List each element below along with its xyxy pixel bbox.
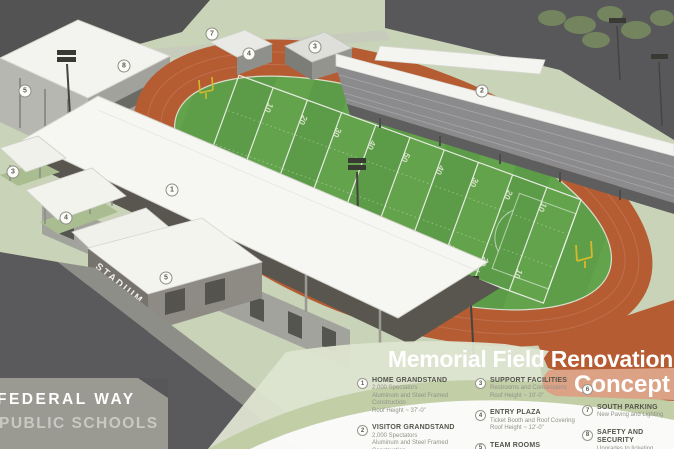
district-logo: FEDERAL WAY PUBLIC SCHOOLS [0,378,168,449]
legend-item-2: 2VISITOR GRANDSTAND2,000 SpectatorsAlumi… [357,424,471,449]
legend-item-3: 3SUPPORT FACILITIESRestrooms and Concess… [475,377,578,400]
rendering-page: 102030405040302010102030405040302010 [0,0,674,449]
legend-item-8: 8SAFETY AND SECURITYUpgrades to ticketin… [582,429,674,449]
legend-item-6: 6 [582,383,674,395]
callout-marker-7: 7 [206,28,219,41]
legend-item-label: SOUTH PARKING [597,404,663,412]
legend-item-desc: Roof Height ~ 10'-0" [490,393,567,401]
legend: 1HOME GRANDSTAND2,000 SpectatorsAluminum… [357,377,674,449]
legend-column-1: 1HOME GRANDSTAND2,000 SpectatorsAluminum… [357,377,471,449]
legend-item-number: 5 [475,443,486,449]
legend-item-4: 4ENTRY PLAZATicket Booth and Roof Coveri… [475,409,578,432]
legend-item-label: TEAM ROOMS [490,442,574,449]
legend-item-label: VISITOR GRANDSTAND [372,424,471,432]
callout-marker-1: 1 [166,184,179,197]
callout-marker-8: 8 [118,60,131,73]
legend-item-label: SAFETY AND SECURITY [597,429,674,446]
legend-item-7: 7SOUTH PARKINGNew Paving and Lighting [582,404,674,420]
logo-line2: PUBLIC SCHOOLS [0,415,159,432]
callout-marker-3: 3 [7,166,20,179]
legend-item-desc: Roof Height ~ 12'-0" [490,425,575,433]
callout-marker-5: 5 [160,272,173,285]
legend-item-5: 5TEAM ROOMSRenovations of Existing Space… [475,442,578,449]
legend-item-desc: 2,000 Spectators [372,433,471,441]
legend-item-number: 2 [357,425,368,436]
legend-item-number: 3 [475,378,486,389]
callout-marker-4: 4 [243,48,256,61]
legend-item-label: HOME GRANDSTAND [372,377,471,385]
legend-item-desc: Roof Height ~ 37'-0" [372,408,471,416]
legend-item-desc: Restrooms and Concessions [490,385,567,393]
legend-item-1: 1HOME GRANDSTAND2,000 SpectatorsAluminum… [357,377,471,415]
legend-item-number: 8 [582,430,593,441]
legend-item-number: 1 [357,378,368,389]
legend-item-label: ENTRY PLAZA [490,409,575,417]
legend-item-desc: Aluminum and Steel Framed Construction [372,393,471,408]
callout-marker-5: 5 [19,85,32,98]
legend-item-desc: 2,000 Spectators [372,385,471,393]
legend-item-desc: Ticket Booth and Roof Covering [490,418,575,426]
legend-item-number: 7 [582,405,593,416]
page-title: Memorial Field Renovation [388,346,673,373]
callout-marker-2: 2 [476,85,489,98]
callout-marker-3: 3 [309,41,322,54]
legend-item-desc: Aluminum and Steel Framed Construction [372,440,471,449]
legend-item-label: SUPPORT FACILITIES [490,377,567,385]
legend-column-3: 67SOUTH PARKINGNew Paving and Lighting8S… [582,377,674,449]
legend-item-desc: New Paving and Lighting [597,412,663,420]
legend-column-2: 3SUPPORT FACILITIESRestrooms and Concess… [475,377,578,449]
logo-line1: FEDERAL WAY [0,391,136,408]
legend-item-number: 4 [475,410,486,421]
legend-item-number: 6 [582,384,593,395]
callout-marker-4: 4 [60,212,73,225]
